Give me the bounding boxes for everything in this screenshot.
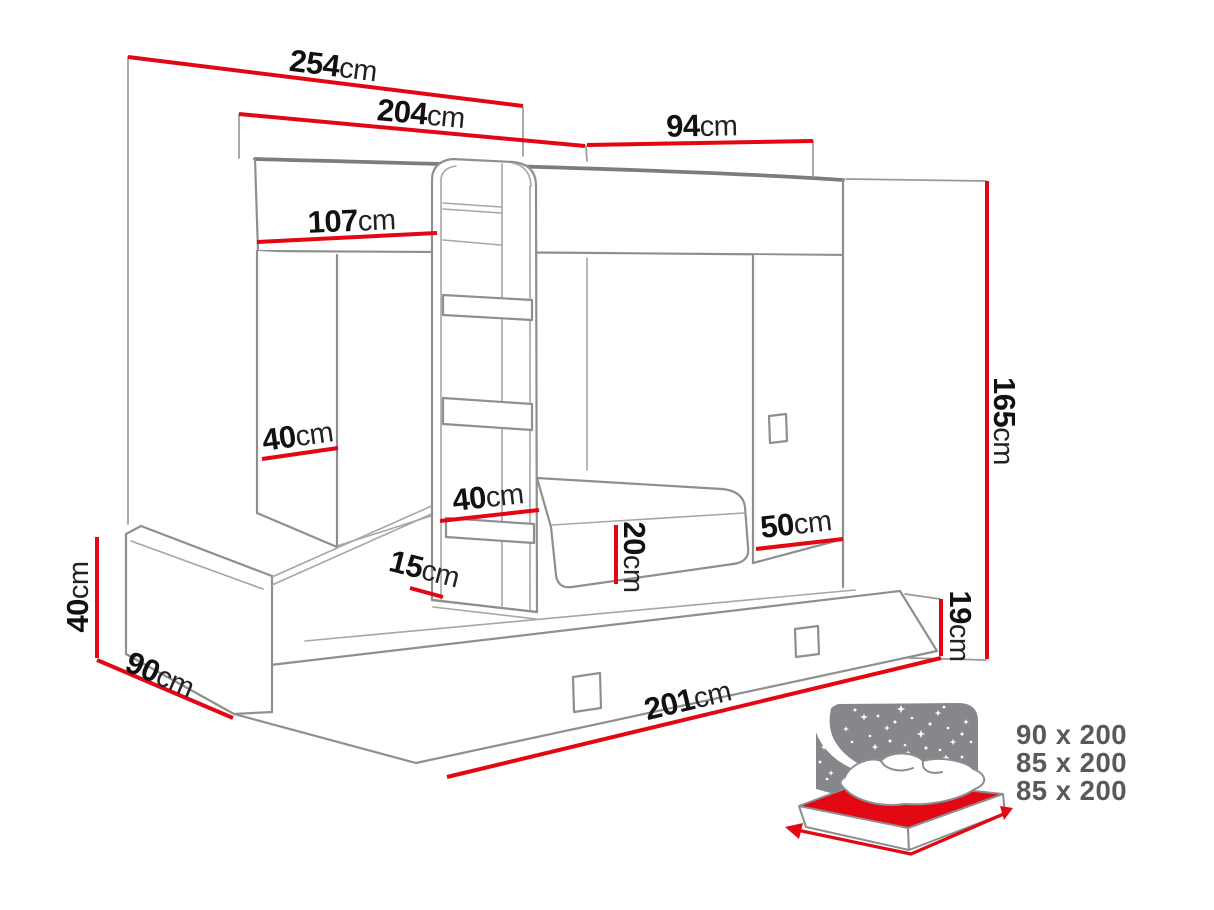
dimension-label-total-width: 254cm xyxy=(288,43,380,88)
shelf-box xyxy=(443,295,532,320)
dimension-label-mattress-height: 20cm xyxy=(617,521,652,592)
dimension-label-headboard-width: 107cm xyxy=(307,201,396,240)
left-pillar xyxy=(257,251,337,547)
drawer-handle xyxy=(795,626,819,657)
dimension-label-drawer-height: 19cm xyxy=(943,590,978,661)
night-bed-icon xyxy=(785,698,1013,854)
dimension-label-total-height: 165cm xyxy=(987,377,1022,465)
lower-bunk-interior xyxy=(337,258,748,587)
furniture-outline xyxy=(126,57,986,763)
ladder-shelf-column xyxy=(432,159,537,619)
mattress-size-item: 85 x 200 xyxy=(1016,775,1127,806)
drawer-handle xyxy=(573,673,601,712)
mattress-size-list: 90 x 200 85 x 200 85 x 200 xyxy=(1016,719,1127,806)
dimension-label-upper-depth: 94cm xyxy=(666,107,738,143)
dimension-label-base-height: 40cm xyxy=(60,561,95,632)
bunk-bed-dimension-diagram: 254cm 204cm 94cm 107cm 40cm 40cm 15cm 20… xyxy=(0,0,1214,910)
shelf-box xyxy=(443,398,532,430)
panel-handle xyxy=(769,414,787,443)
mattress-size-item: 85 x 200 xyxy=(1016,747,1127,778)
dimension-diagram-page: 254cm 204cm 94cm 107cm 40cm 40cm 15cm 20… xyxy=(0,0,1214,910)
mattress-size-item: 90 x 200 xyxy=(1016,719,1127,750)
